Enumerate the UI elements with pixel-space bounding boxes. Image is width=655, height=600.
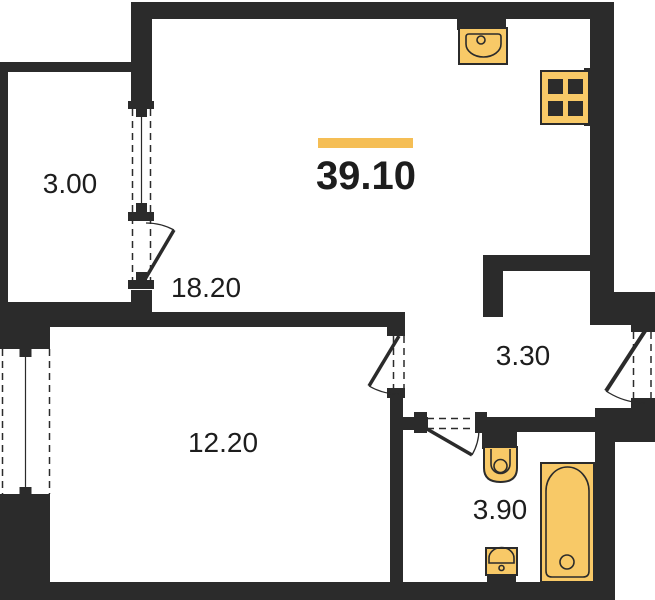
- entrance-jamb-top: [631, 320, 655, 332]
- title-block: 39.10: [316, 138, 416, 198]
- floor-plan: 39.10 3.00 18.20 12.20 3.30 3.90: [0, 0, 655, 600]
- wall-top: [131, 2, 614, 19]
- bathroom-door-leaf: [427, 429, 472, 455]
- toilet-bowl: [484, 447, 517, 482]
- entrance-jamb-bottom: [631, 398, 655, 410]
- kitchen-sink-icon: [457, 19, 507, 64]
- toilet-tank: [482, 428, 517, 449]
- wall-right-upper: [590, 2, 614, 295]
- wall-bottom: [0, 582, 615, 600]
- toilet-icon: [482, 428, 517, 482]
- total-area-accent-bar: [318, 138, 413, 148]
- balcony-frame-block-mid-upper: [136, 203, 147, 212]
- entrance-door-leaf: [606, 331, 645, 391]
- wall-hallway-notch-vertical: [483, 255, 503, 317]
- bedroom-area-label: 12.20: [188, 427, 258, 458]
- stove-body: [541, 71, 589, 124]
- bathroom-area-label: 3.90: [473, 494, 528, 525]
- washbasin-base: [487, 575, 516, 583]
- window-frame-block-top: [20, 347, 32, 357]
- balcony-jamb-bottom: [128, 280, 154, 289]
- wall-left-lower: [0, 501, 50, 600]
- wall-bedroom-bath-vertical: [390, 398, 403, 582]
- wall-balcony-left: [0, 62, 8, 315]
- hallway-area-label: 3.30: [496, 340, 551, 371]
- stove-burner-4: [568, 101, 583, 116]
- wall-balcony-top: [0, 62, 152, 72]
- stove-icon: [541, 68, 596, 126]
- washbasin-icon: [486, 548, 517, 584]
- wall-main-horizontal: [0, 312, 405, 327]
- wall-balcony-separator-top: [131, 2, 152, 102]
- balcony-jamb-top: [128, 101, 154, 109]
- entrance-door: [606, 320, 655, 410]
- bathtub-icon: [541, 463, 594, 582]
- balcony-frame-block-top: [136, 108, 147, 117]
- window-frame-block-bottom: [20, 487, 32, 497]
- bathroom-door-jamb-left: [414, 412, 427, 433]
- balcony-area-label: 3.00: [43, 168, 98, 199]
- bedroom-door-jamb-top: [387, 325, 405, 336]
- wall-bathroom-right: [595, 442, 615, 600]
- living-kitchen-area-label: 18.20: [171, 272, 241, 303]
- floor-plan-canvas: 39.10 3.00 18.20 12.20 3.30 3.90: [0, 0, 655, 600]
- balcony-door-leaf: [144, 230, 174, 281]
- balcony-door-swing-arc: [146, 223, 174, 230]
- stove-burner-1: [548, 79, 563, 94]
- stove-burner-2: [568, 79, 583, 94]
- bathroom-door: [414, 412, 487, 455]
- wall-balcony-separator-bottom: [131, 290, 152, 315]
- bedroom-window: [0, 342, 50, 501]
- total-area-label: 39.10: [316, 154, 416, 198]
- bedroom-door: [369, 325, 405, 398]
- balcony-window-door-unit: [128, 101, 174, 289]
- bathtub-body: [541, 463, 594, 582]
- room-labels: 3.00 18.20 12.20 3.30 3.90: [43, 168, 551, 525]
- bedroom-door-leaf: [369, 336, 399, 386]
- stove-burner-3: [548, 101, 563, 116]
